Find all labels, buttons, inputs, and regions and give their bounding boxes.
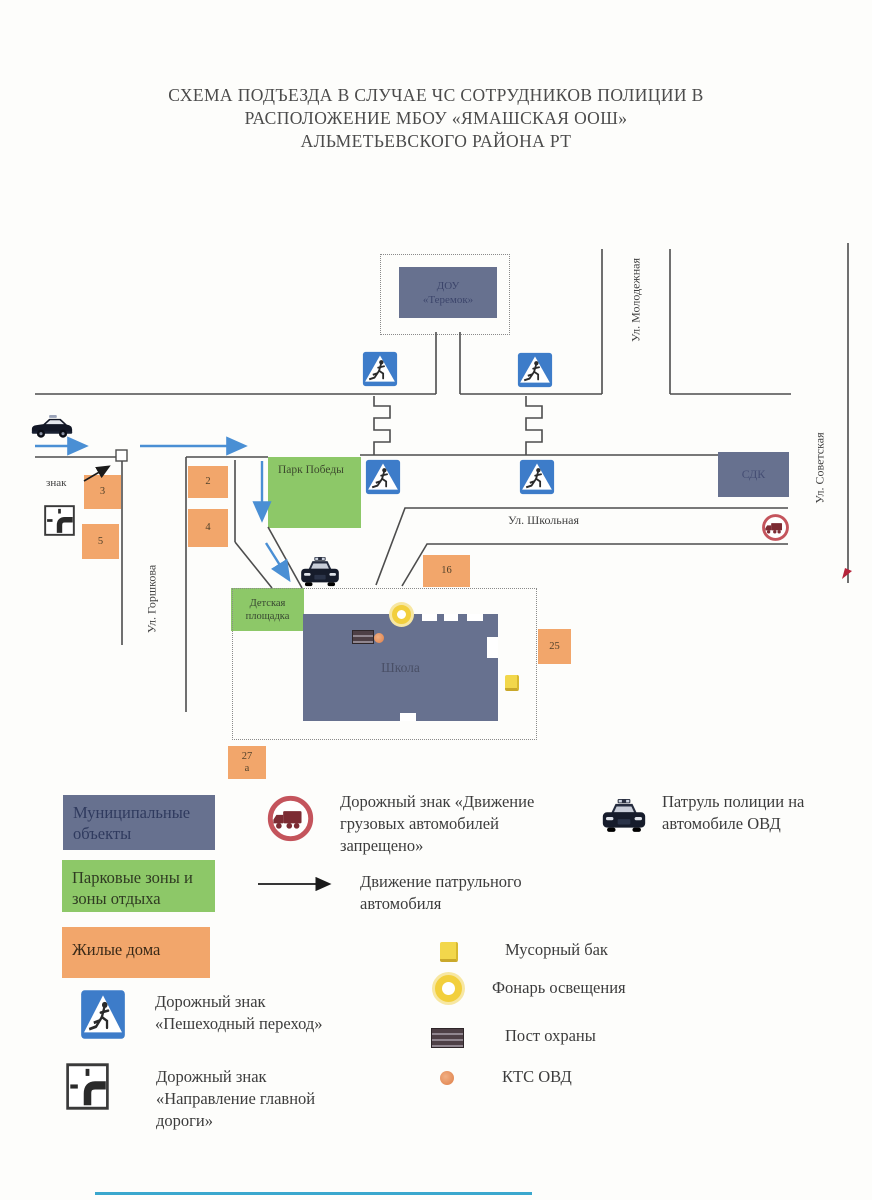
znak-label: знак [46,477,66,489]
legend-ped-crossing-text: Дорожный знак «Пешеходный переход» [155,991,385,1035]
trash-bin-legend-icon [440,942,458,962]
house-2: 2 [188,466,228,498]
title-line-2: РАСПОЛОЖЕНИЕ МБОУ «ЯМАШСКАЯ ООШ» [0,107,872,130]
pedestrian-crossing-sign [362,351,398,392]
legend-no-trucks-text: Дорожный знак «Движение грузовых автомоб… [340,791,580,857]
pedestrian-crossing-sign [365,459,401,500]
pedestrian-crossing-sign [517,352,553,393]
title-line-1: СХЕМА ПОДЪЕЗДА В СЛУЧАЕ ЧС СОТРУДНИКОВ П… [0,84,872,107]
house-3: 3 [84,475,121,509]
house-4: 4 [188,509,228,547]
legend-residential-swatch: Жилые дома [62,927,210,978]
legend-guard-post-text: Пост охраны [505,1025,596,1047]
school-entrance-slot [444,614,458,621]
street-molodezhnaya-label: Ул. Молодежная [629,258,644,342]
main-road-sign-legend-icon [66,1063,109,1115]
kts-ovd-legend-icon [440,1071,454,1085]
main-road-direction-sign [44,504,75,542]
police-car-side-icon [29,412,75,447]
title-line-3: АЛЬМЕТЬЕВСКОГО РАЙОНА РТ [0,130,872,153]
police-car-legend-icon [596,798,652,839]
guard-post-icon [352,630,374,644]
legend-park-swatch: Парковые зоны и зоны отдыха [62,860,215,912]
pedestrian-sign-legend-icon [80,989,126,1045]
guard-post-legend-icon [431,1028,464,1048]
school-entrance-slot [467,614,483,621]
house-5: 5 [82,524,119,559]
street-gorshkova-label: Ул. Горшкова [145,565,160,633]
legend-police-patrol-text: Патруль полиции на автомобиле ОВД [662,791,872,835]
red-tick [842,568,852,579]
park-pobedy-zone: Парк Победы [268,457,361,528]
lantern-legend-icon [435,975,462,1002]
house-27a: 27 а [228,746,266,779]
gate-marker [116,450,127,461]
building-sdk: СДК [718,452,789,497]
page-title: СХЕМА ПОДЪЕЗДА В СЛУЧАЕ ЧС СОТРУДНИКОВ П… [0,84,872,153]
legend-trash-text: Мусорный бак [505,939,608,961]
fence-zigzag [526,396,542,455]
school-entrance-slot [400,713,416,721]
legend-municipal-swatch: Муниципальные объекты [63,795,215,850]
trash-bin-icon [505,675,519,691]
legend-patrol-movement-text: Движение патрульного автомобиля [360,871,580,915]
legend-lantern-text: Фонарь освещения [492,977,626,999]
street-shkolnaya-label: Ул. Школьная [508,513,579,528]
school-entrance-slot [422,614,437,621]
legend-main-road-text: Дорожный знак «Направление главной дорог… [156,1066,386,1132]
pedestrian-crossing-sign [519,459,555,500]
park-pobedy-label: Парк Победы [278,464,344,476]
scheme-page: СХЕМА ПОДЪЕЗДА В СЛУЧАЕ ЧС СОТРУДНИКОВ П… [0,0,872,1200]
fence-zigzag [374,396,390,455]
no-trucks-sign [761,513,790,547]
house-16: 16 [423,555,470,587]
kts-ovd-icon [374,633,384,643]
bottom-rule [95,1192,532,1195]
building-school: Школа [303,614,498,721]
school-entrance-slot [487,637,498,658]
legend-kts-text: КТС ОВД [502,1066,572,1088]
street-sovetskaya-label: Ул. Советская [813,432,828,503]
police-car-front-icon [299,556,341,593]
building-dou-teremok: ДОУ «Теремок» [399,267,497,318]
no-trucks-sign-legend-icon [266,794,315,848]
street-lantern-icon [392,605,411,624]
house-25: 25 [538,629,571,664]
